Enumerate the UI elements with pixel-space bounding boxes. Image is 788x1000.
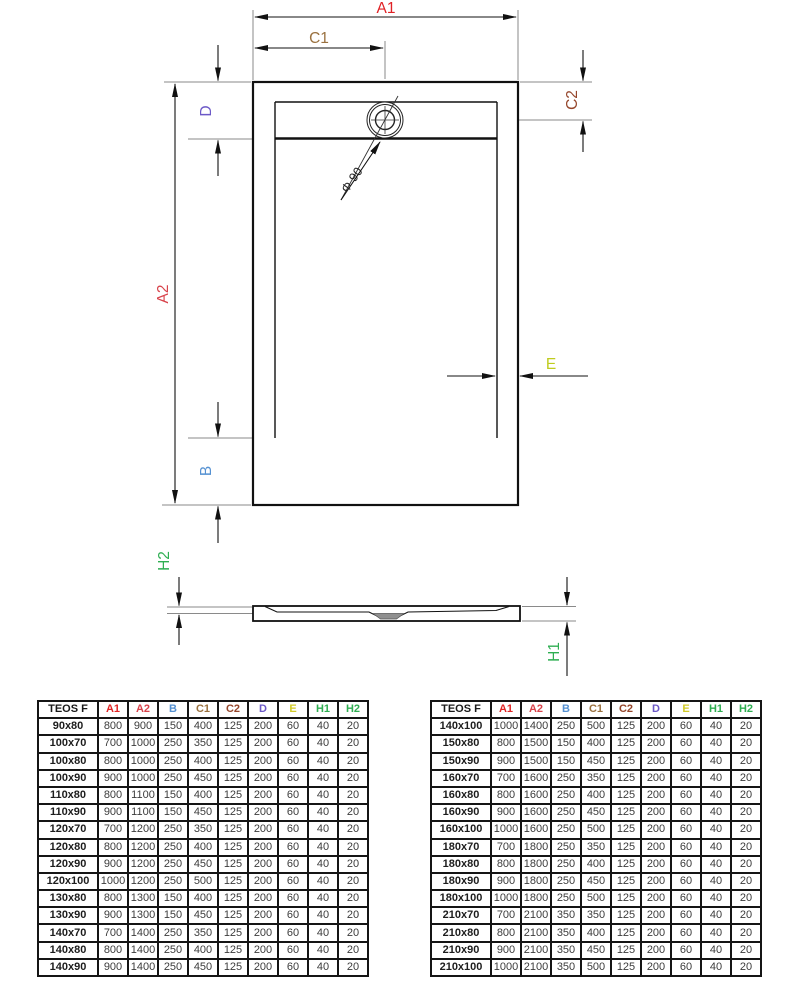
- value-cell: 800: [98, 718, 128, 735]
- size-cell: 210x70: [431, 907, 491, 924]
- dimensions-table-right: TEOS FA1A2BC1C2DEH1H2140x100100014002505…: [430, 700, 762, 977]
- value-cell: 60: [671, 770, 701, 787]
- value-cell: 1000: [128, 753, 158, 770]
- table-row: 90x80800900150400125200604020: [38, 718, 368, 735]
- dim-header-h1: H1: [308, 701, 338, 718]
- value-cell: 60: [671, 942, 701, 959]
- table-row: 130x909001300150450125200604020: [38, 907, 368, 924]
- value-cell: 250: [158, 959, 188, 976]
- value-cell: 200: [248, 856, 278, 873]
- value-cell: 60: [671, 873, 701, 890]
- value-cell: 500: [581, 959, 611, 976]
- size-cell: 120x100: [38, 873, 98, 890]
- value-cell: 40: [701, 907, 731, 924]
- value-cell: 200: [248, 804, 278, 821]
- value-cell: 125: [218, 735, 248, 752]
- value-cell: 250: [551, 839, 581, 856]
- value-cell: 200: [641, 890, 671, 907]
- dim-header-b: B: [158, 701, 188, 718]
- value-cell: 20: [731, 907, 761, 924]
- value-cell: 60: [278, 770, 308, 787]
- table-row: 210x707002100350350125200604020: [431, 907, 761, 924]
- value-cell: 125: [218, 942, 248, 959]
- dim-header-h2: H2: [731, 701, 761, 718]
- value-cell: 2100: [521, 942, 551, 959]
- table-row: 140x909001400250450125200604020: [38, 959, 368, 976]
- size-cell: 140x70: [38, 924, 98, 941]
- value-cell: 350: [551, 942, 581, 959]
- value-cell: 250: [158, 873, 188, 890]
- dim-label-d: D: [198, 105, 215, 116]
- header-row: TEOS FA1A2BC1C2DEH1H2: [38, 701, 368, 718]
- value-cell: 60: [278, 959, 308, 976]
- value-cell: 150: [551, 753, 581, 770]
- value-cell: 800: [98, 890, 128, 907]
- value-cell: 20: [338, 873, 368, 890]
- value-cell: 40: [308, 959, 338, 976]
- value-cell: 800: [491, 787, 521, 804]
- value-cell: 200: [641, 753, 671, 770]
- value-cell: 450: [188, 907, 218, 924]
- table-row: 180x808001800250400125200604020: [431, 856, 761, 873]
- header-row: TEOS FA1A2BC1C2DEH1H2: [431, 701, 761, 718]
- value-cell: 200: [641, 821, 671, 838]
- size-cell: 120x90: [38, 856, 98, 873]
- value-cell: 250: [551, 787, 581, 804]
- dim-label-a2: A2: [155, 285, 172, 304]
- value-cell: 400: [188, 942, 218, 959]
- size-cell: 140x100: [431, 718, 491, 735]
- value-cell: 250: [158, 770, 188, 787]
- value-cell: 20: [731, 959, 761, 976]
- value-cell: 700: [491, 907, 521, 924]
- value-cell: 400: [581, 924, 611, 941]
- value-cell: 125: [218, 839, 248, 856]
- value-cell: 60: [278, 907, 308, 924]
- value-cell: 400: [581, 856, 611, 873]
- value-cell: 900: [128, 718, 158, 735]
- value-cell: 60: [671, 907, 701, 924]
- value-cell: 20: [731, 770, 761, 787]
- value-cell: 60: [671, 718, 701, 735]
- value-cell: 40: [701, 856, 731, 873]
- value-cell: 1000: [491, 959, 521, 976]
- value-cell: 700: [98, 735, 128, 752]
- size-cell: 90x80: [38, 718, 98, 735]
- value-cell: 20: [731, 718, 761, 735]
- value-cell: 200: [641, 924, 671, 941]
- value-cell: 125: [611, 924, 641, 941]
- value-cell: 40: [308, 907, 338, 924]
- value-cell: 40: [701, 718, 731, 735]
- value-cell: 20: [338, 907, 368, 924]
- value-cell: 250: [551, 890, 581, 907]
- value-cell: 200: [641, 907, 671, 924]
- value-cell: 150: [158, 907, 188, 924]
- value-cell: 125: [611, 942, 641, 959]
- value-cell: 125: [218, 856, 248, 873]
- table-row: 120x10010001200250500125200604020: [38, 873, 368, 890]
- value-cell: 20: [338, 839, 368, 856]
- value-cell: 20: [338, 821, 368, 838]
- value-cell: 150: [551, 735, 581, 752]
- value-cell: 200: [248, 770, 278, 787]
- value-cell: 900: [491, 873, 521, 890]
- value-cell: 700: [491, 770, 521, 787]
- size-cell: 160x90: [431, 804, 491, 821]
- value-cell: 150: [158, 718, 188, 735]
- value-cell: 2100: [521, 907, 551, 924]
- value-cell: 40: [701, 839, 731, 856]
- table-row: 210x808002100350400125200604020: [431, 924, 761, 941]
- table-row: 160x10010001600250500125200604020: [431, 821, 761, 838]
- value-cell: 40: [308, 718, 338, 735]
- value-cell: 1800: [521, 890, 551, 907]
- size-cell: 210x100: [431, 959, 491, 976]
- value-cell: 20: [731, 753, 761, 770]
- value-cell: 40: [701, 735, 731, 752]
- value-cell: 150: [158, 787, 188, 804]
- value-cell: 350: [551, 907, 581, 924]
- dim-label-h2: H2: [156, 551, 173, 571]
- value-cell: 40: [308, 735, 338, 752]
- value-cell: 250: [158, 839, 188, 856]
- technical-drawing: A1 C1 C2 D A2 B E H2 H1 Φ 90: [0, 0, 788, 695]
- value-cell: 125: [611, 804, 641, 821]
- table-row: 110x808001100150400125200604020: [38, 787, 368, 804]
- value-cell: 125: [218, 770, 248, 787]
- table-row: 100x808001000250400125200604020: [38, 753, 368, 770]
- value-cell: 60: [671, 753, 701, 770]
- value-cell: 900: [491, 753, 521, 770]
- dim-header-a1: A1: [491, 701, 521, 718]
- value-cell: 20: [731, 890, 761, 907]
- value-cell: 250: [551, 770, 581, 787]
- size-cell: 120x80: [38, 839, 98, 856]
- value-cell: 60: [671, 856, 701, 873]
- table-row: 180x10010001800250500125200604020: [431, 890, 761, 907]
- value-cell: 200: [641, 942, 671, 959]
- dim-header-h1: H1: [701, 701, 731, 718]
- dim-header-b: B: [551, 701, 581, 718]
- value-cell: 125: [218, 924, 248, 941]
- value-cell: 1800: [521, 856, 551, 873]
- dim-label-a1: A1: [377, 0, 396, 17]
- value-cell: 20: [731, 804, 761, 821]
- value-cell: 450: [188, 770, 218, 787]
- value-cell: 20: [338, 959, 368, 976]
- dim-header-c1: C1: [188, 701, 218, 718]
- size-cell: 180x80: [431, 856, 491, 873]
- value-cell: 200: [248, 942, 278, 959]
- value-cell: 400: [188, 839, 218, 856]
- value-cell: 400: [188, 890, 218, 907]
- value-cell: 20: [338, 890, 368, 907]
- value-cell: 1000: [98, 873, 128, 890]
- value-cell: 200: [641, 959, 671, 976]
- table-row: 110x909001100150450125200604020: [38, 804, 368, 821]
- value-cell: 800: [491, 735, 521, 752]
- table-row: 160x707001600250350125200604020: [431, 770, 761, 787]
- value-cell: 1400: [128, 924, 158, 941]
- product-header: TEOS F: [431, 701, 491, 718]
- value-cell: 1100: [128, 804, 158, 821]
- value-cell: 1800: [521, 873, 551, 890]
- value-cell: 20: [731, 821, 761, 838]
- size-cell: 150x80: [431, 735, 491, 752]
- value-cell: 1500: [521, 735, 551, 752]
- value-cell: 20: [338, 718, 368, 735]
- value-cell: 200: [641, 873, 671, 890]
- value-cell: 40: [308, 821, 338, 838]
- value-cell: 40: [308, 890, 338, 907]
- value-cell: 125: [611, 907, 641, 924]
- value-cell: 200: [248, 924, 278, 941]
- value-cell: 150: [158, 890, 188, 907]
- size-cell: 100x70: [38, 735, 98, 752]
- value-cell: 200: [641, 839, 671, 856]
- value-cell: 40: [701, 890, 731, 907]
- value-cell: 400: [188, 753, 218, 770]
- dim-header-d: D: [641, 701, 671, 718]
- value-cell: 350: [188, 735, 218, 752]
- value-cell: 350: [551, 924, 581, 941]
- table-row: 160x909001600250450125200604020: [431, 804, 761, 821]
- dim-header-h2: H2: [338, 701, 368, 718]
- value-cell: 250: [551, 873, 581, 890]
- value-cell: 250: [158, 924, 188, 941]
- size-cell: 130x90: [38, 907, 98, 924]
- value-cell: 350: [581, 839, 611, 856]
- table-row: 130x808001300150400125200604020: [38, 890, 368, 907]
- value-cell: 125: [611, 821, 641, 838]
- value-cell: 20: [731, 942, 761, 959]
- value-cell: 125: [218, 718, 248, 735]
- dim-header-e: E: [278, 701, 308, 718]
- value-cell: 1100: [128, 787, 158, 804]
- size-cell: 210x90: [431, 942, 491, 959]
- size-cell: 140x80: [38, 942, 98, 959]
- value-cell: 40: [701, 770, 731, 787]
- table-row: 160x808001600250400125200604020: [431, 787, 761, 804]
- value-cell: 20: [731, 787, 761, 804]
- value-cell: 500: [188, 873, 218, 890]
- size-cell: 210x80: [431, 924, 491, 941]
- value-cell: 700: [98, 821, 128, 838]
- value-cell: 60: [278, 753, 308, 770]
- value-cell: 200: [641, 856, 671, 873]
- value-cell: 40: [701, 804, 731, 821]
- value-cell: 800: [98, 787, 128, 804]
- value-cell: 1000: [491, 821, 521, 838]
- value-cell: 800: [98, 942, 128, 959]
- table-row: 150x808001500150400125200604020: [431, 735, 761, 752]
- value-cell: 450: [581, 873, 611, 890]
- size-cell: 110x90: [38, 804, 98, 821]
- value-cell: 40: [308, 942, 338, 959]
- value-cell: 60: [278, 924, 308, 941]
- value-cell: 20: [731, 924, 761, 941]
- value-cell: 40: [308, 753, 338, 770]
- table-row: 180x909001800250450125200604020: [431, 873, 761, 890]
- value-cell: 400: [188, 787, 218, 804]
- value-cell: 200: [248, 873, 278, 890]
- value-cell: 40: [701, 753, 731, 770]
- value-cell: 60: [278, 787, 308, 804]
- table-row: 120x707001200250350125200604020: [38, 821, 368, 838]
- value-cell: 500: [581, 718, 611, 735]
- value-cell: 125: [218, 959, 248, 976]
- size-cell: 160x100: [431, 821, 491, 838]
- value-cell: 1600: [521, 821, 551, 838]
- value-cell: 450: [188, 959, 218, 976]
- dim-header-a2: A2: [128, 701, 158, 718]
- value-cell: 900: [98, 959, 128, 976]
- value-cell: 60: [278, 839, 308, 856]
- table-row: 140x10010001400250500125200604020: [431, 718, 761, 735]
- dim-header-c2: C2: [611, 701, 641, 718]
- value-cell: 20: [338, 804, 368, 821]
- size-cell: 130x80: [38, 890, 98, 907]
- value-cell: 40: [308, 924, 338, 941]
- value-cell: 60: [278, 821, 308, 838]
- value-cell: 350: [188, 821, 218, 838]
- value-cell: 250: [551, 718, 581, 735]
- value-cell: 125: [611, 770, 641, 787]
- size-cell: 100x80: [38, 753, 98, 770]
- dim-header-d: D: [248, 701, 278, 718]
- table-row: 210x909002100350450125200604020: [431, 942, 761, 959]
- page: A1 C1 C2 D A2 B E H2 H1 Φ 90 TEOS FA1A2B…: [0, 0, 788, 1000]
- value-cell: 200: [248, 718, 278, 735]
- value-cell: 125: [218, 804, 248, 821]
- value-cell: 60: [671, 787, 701, 804]
- table-row: 140x707001400250350125200604020: [38, 924, 368, 941]
- value-cell: 450: [581, 753, 611, 770]
- value-cell: 800: [98, 839, 128, 856]
- value-cell: 60: [671, 804, 701, 821]
- value-cell: 200: [641, 735, 671, 752]
- value-cell: 125: [218, 873, 248, 890]
- dimensions-table-left: TEOS FA1A2BC1C2DEH1H290x8080090015040012…: [37, 700, 369, 977]
- top-view-outline: [253, 82, 518, 505]
- value-cell: 20: [731, 873, 761, 890]
- value-cell: 60: [278, 735, 308, 752]
- value-cell: 125: [611, 873, 641, 890]
- value-cell: 2100: [521, 924, 551, 941]
- value-cell: 200: [248, 959, 278, 976]
- value-cell: 200: [248, 821, 278, 838]
- table-row: 210x10010002100350500125200604020: [431, 959, 761, 976]
- value-cell: 20: [338, 787, 368, 804]
- value-cell: 40: [308, 770, 338, 787]
- value-cell: 800: [491, 924, 521, 941]
- value-cell: 250: [158, 821, 188, 838]
- value-cell: 500: [581, 890, 611, 907]
- value-cell: 900: [491, 942, 521, 959]
- dim-label-c2: C2: [564, 90, 581, 110]
- value-cell: 1400: [521, 718, 551, 735]
- value-cell: 150: [158, 804, 188, 821]
- dim-header-e: E: [671, 701, 701, 718]
- value-cell: 20: [731, 839, 761, 856]
- value-cell: 60: [671, 821, 701, 838]
- value-cell: 900: [98, 770, 128, 787]
- size-cell: 100x90: [38, 770, 98, 787]
- value-cell: 125: [218, 821, 248, 838]
- value-cell: 20: [338, 924, 368, 941]
- table-row: 100x707001000250350125200604020: [38, 735, 368, 752]
- value-cell: 700: [98, 924, 128, 941]
- value-cell: 200: [641, 804, 671, 821]
- value-cell: 450: [188, 804, 218, 821]
- size-cell: 150x90: [431, 753, 491, 770]
- value-cell: 1000: [491, 718, 521, 735]
- value-cell: 1200: [128, 856, 158, 873]
- value-cell: 60: [671, 839, 701, 856]
- value-cell: 40: [701, 942, 731, 959]
- table-row: 120x909001200250450125200604020: [38, 856, 368, 873]
- value-cell: 20: [338, 942, 368, 959]
- value-cell: 450: [188, 856, 218, 873]
- dim-header-a2: A2: [521, 701, 551, 718]
- value-cell: 1200: [128, 839, 158, 856]
- size-cell: 120x70: [38, 821, 98, 838]
- value-cell: 40: [701, 959, 731, 976]
- value-cell: 20: [731, 735, 761, 752]
- value-cell: 1300: [128, 907, 158, 924]
- value-cell: 200: [641, 718, 671, 735]
- value-cell: 900: [98, 804, 128, 821]
- value-cell: 200: [248, 839, 278, 856]
- value-cell: 40: [308, 839, 338, 856]
- value-cell: 60: [278, 804, 308, 821]
- table-row: 180x707001800250350125200604020: [431, 839, 761, 856]
- value-cell: 800: [98, 753, 128, 770]
- value-cell: 40: [308, 856, 338, 873]
- value-cell: 1600: [521, 770, 551, 787]
- dim-label-h1: H1: [546, 642, 563, 662]
- value-cell: 350: [551, 959, 581, 976]
- value-cell: 40: [701, 873, 731, 890]
- value-cell: 125: [611, 959, 641, 976]
- value-cell: 40: [308, 804, 338, 821]
- value-cell: 1800: [521, 839, 551, 856]
- value-cell: 60: [278, 890, 308, 907]
- value-cell: 400: [581, 735, 611, 752]
- value-cell: 40: [308, 787, 338, 804]
- value-cell: 125: [611, 787, 641, 804]
- value-cell: 125: [218, 890, 248, 907]
- value-cell: 60: [278, 873, 308, 890]
- value-cell: 250: [158, 735, 188, 752]
- value-cell: 125: [611, 735, 641, 752]
- value-cell: 125: [611, 753, 641, 770]
- value-cell: 60: [278, 942, 308, 959]
- value-cell: 250: [551, 804, 581, 821]
- value-cell: 200: [248, 735, 278, 752]
- value-cell: 250: [551, 821, 581, 838]
- value-cell: 350: [581, 907, 611, 924]
- value-cell: 200: [248, 753, 278, 770]
- value-cell: 250: [551, 856, 581, 873]
- value-cell: 125: [611, 890, 641, 907]
- value-cell: 200: [248, 787, 278, 804]
- value-cell: 20: [338, 735, 368, 752]
- value-cell: 400: [188, 718, 218, 735]
- dim-label-b: B: [198, 466, 215, 476]
- value-cell: 20: [338, 770, 368, 787]
